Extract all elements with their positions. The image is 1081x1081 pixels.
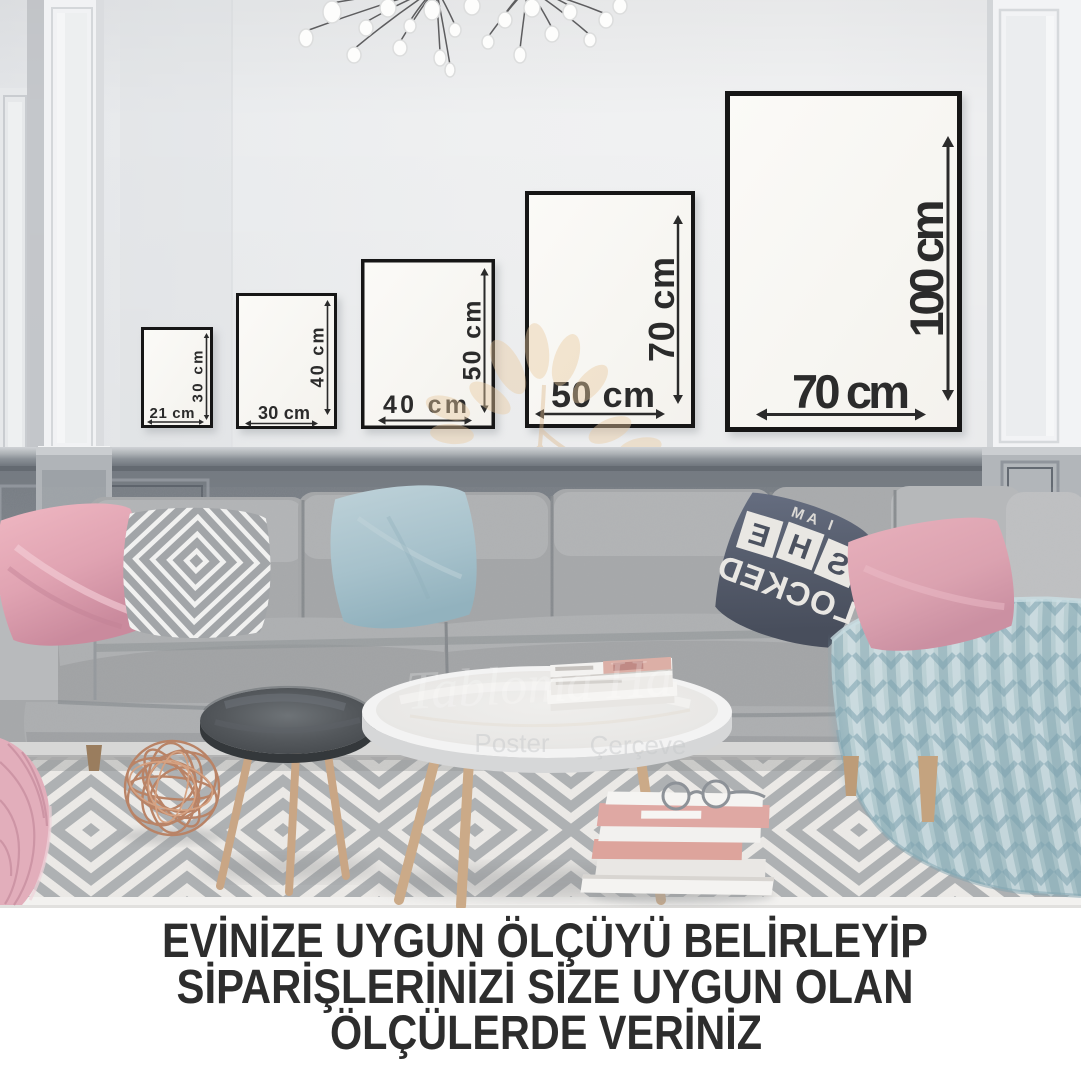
svg-text:70 cm: 70 cm — [641, 257, 682, 362]
svg-text:100 cm: 100 cm — [900, 200, 953, 338]
svg-text:ÖLÇÜLERDE VERİNİZ: ÖLÇÜLERDE VERİNİZ — [330, 1007, 762, 1060]
svg-text:30 cm: 30 cm — [258, 403, 310, 423]
svg-text:21 cm: 21 cm — [150, 405, 195, 422]
svg-text:Çerçeve: Çerçeve — [590, 730, 687, 760]
svg-text:Poster: Poster — [474, 728, 549, 758]
svg-text:70 cm: 70 cm — [792, 365, 910, 418]
